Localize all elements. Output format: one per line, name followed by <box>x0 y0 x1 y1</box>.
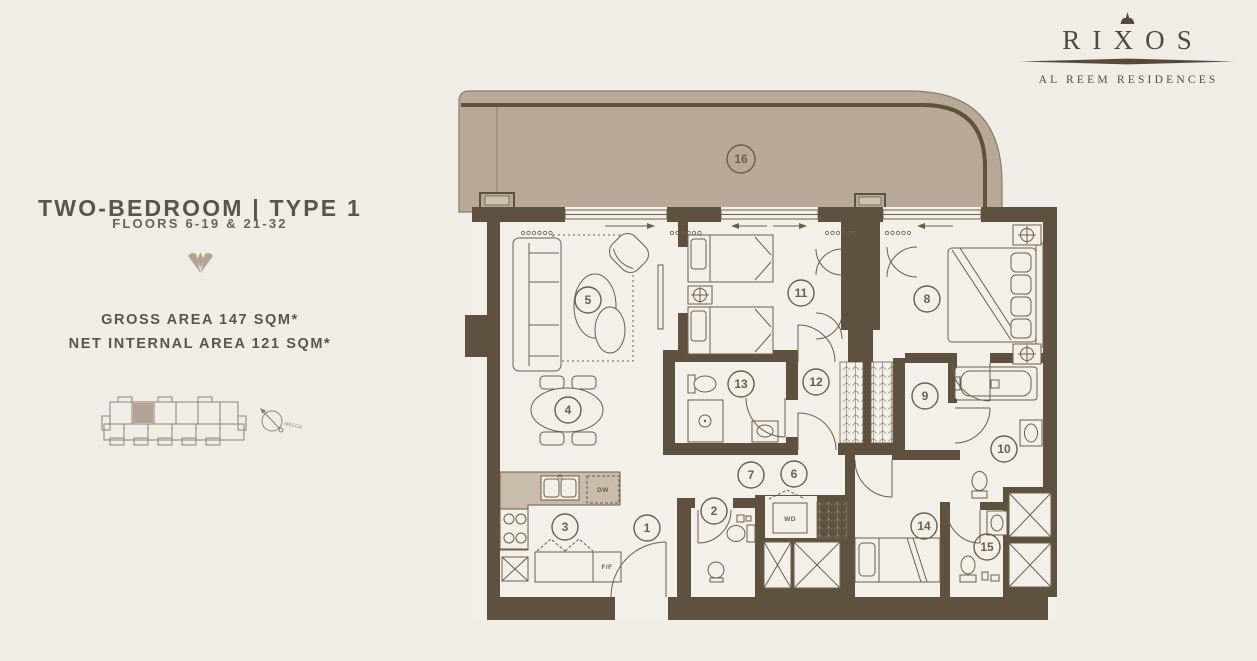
svg-text:F/F: F/F <box>602 564 613 571</box>
shaft-box <box>764 542 791 588</box>
svg-text:10: 10 <box>997 442 1011 456</box>
toilet <box>972 472 987 499</box>
window <box>721 210 818 219</box>
svg-text:DW: DW <box>597 487 609 494</box>
svg-text:15: 15 <box>980 540 994 554</box>
svg-text:5: 5 <box>585 293 592 307</box>
highlighted-unit <box>133 403 153 423</box>
king-bed <box>948 243 1043 347</box>
building-key-plan <box>100 388 250 455</box>
info-panel: TWO-BEDROOM | TYPE 1 FLOORS 6-19 & 21-32… <box>0 0 400 661</box>
svg-text:14: 14 <box>917 519 931 533</box>
svg-text:9: 9 <box>922 389 929 403</box>
brand-name: RIXOS <box>1017 27 1237 53</box>
window <box>565 210 667 219</box>
tulip-down-icon <box>187 250 214 282</box>
svg-text:1: 1 <box>644 521 651 535</box>
brand-logo: RIXOS AL REEM RESIDENCES <box>1017 12 1237 86</box>
chair <box>572 432 596 445</box>
svg-text:16: 16 <box>734 152 748 166</box>
pillow <box>1011 297 1031 316</box>
pillow <box>1011 275 1031 294</box>
sliding-door-leaf <box>658 265 663 329</box>
maid-room-furniture <box>855 538 940 582</box>
svg-text:7: 7 <box>748 468 755 482</box>
toilet <box>688 375 716 393</box>
area-summary: GROSS AREA 147 SQM* NET INTERNAL AREA 12… <box>0 308 400 356</box>
nightstand <box>688 286 712 304</box>
washbasin <box>987 511 1007 535</box>
svg-text:8: 8 <box>924 292 931 306</box>
pillow <box>1011 319 1031 338</box>
net-area: NET INTERNAL AREA 121 SQM* <box>0 332 400 356</box>
twin-bed <box>688 235 773 282</box>
floor-plan: WD <box>455 85 1060 625</box>
svg-text:4: 4 <box>565 403 572 417</box>
shaft-box <box>1009 493 1051 537</box>
side-table <box>595 307 625 353</box>
toilet <box>960 556 976 582</box>
mecca-label: MECCA <box>284 421 304 431</box>
chair <box>572 376 596 389</box>
base-cabinet <box>535 552 593 582</box>
brand-divider <box>1017 53 1237 71</box>
mecca-compass-icon: MECCA <box>252 396 312 445</box>
svg-text:2: 2 <box>711 504 718 518</box>
gross-area: GROSS AREA 147 SQM* <box>0 308 400 332</box>
washbasin <box>1020 420 1042 446</box>
chair <box>540 432 564 445</box>
bathtub <box>955 367 1037 400</box>
shaft-box <box>794 542 840 588</box>
window <box>883 210 981 219</box>
corridor-closet <box>817 502 847 539</box>
stove <box>500 509 528 549</box>
twin-bed <box>688 307 773 354</box>
nightstand <box>1013 344 1041 364</box>
single-bed <box>855 538 940 582</box>
svg-text:13: 13 <box>734 377 748 391</box>
fridge-freezer: F/F <box>593 552 621 582</box>
pillow <box>1011 253 1031 272</box>
toilet <box>727 525 755 542</box>
shaft-box <box>502 557 528 581</box>
floors-subtitle: FLOORS 6-19 & 21-32 <box>0 216 400 231</box>
svg-text:12: 12 <box>809 375 823 389</box>
svg-text:3: 3 <box>562 520 569 534</box>
shower <box>688 400 723 442</box>
svg-text:11: 11 <box>795 286 808 300</box>
balcony-planter <box>480 193 514 208</box>
washer-dryer-label: WD <box>784 516 796 523</box>
sofa <box>513 238 561 371</box>
shaft-box <box>1009 543 1051 587</box>
floorplan-page: TWO-BEDROOM | TYPE 1 FLOORS 6-19 & 21-32… <box>0 0 1257 661</box>
laundry-niche: WD <box>765 490 817 538</box>
chair <box>540 376 564 389</box>
balcony <box>459 91 1002 212</box>
sink <box>541 475 579 500</box>
nightstand <box>1013 225 1041 245</box>
svg-text:6: 6 <box>791 467 798 481</box>
balcony-planter <box>855 194 885 208</box>
